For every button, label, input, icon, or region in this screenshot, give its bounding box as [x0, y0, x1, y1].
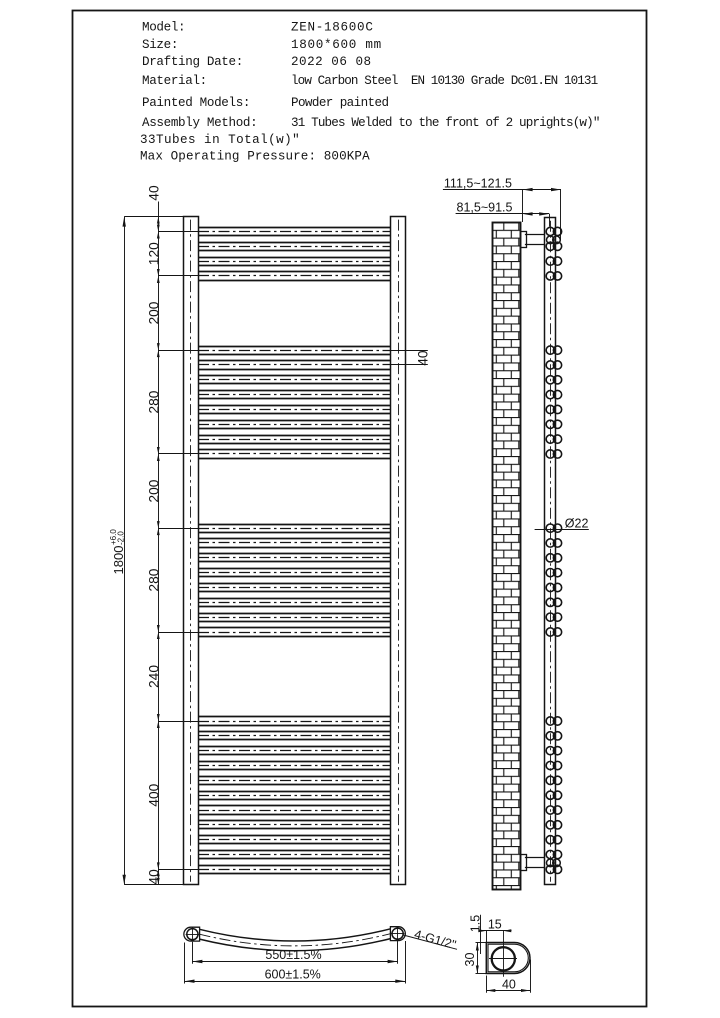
svg-text:400: 400	[147, 783, 162, 806]
svg-text:Size:: Size:	[142, 38, 178, 52]
svg-text:Painted Models:: Painted Models:	[142, 96, 250, 110]
svg-text:33Tubes in Total(w)″: 33Tubes in Total(w)″	[140, 133, 300, 147]
svg-text:Model:: Model:	[142, 21, 185, 35]
svg-text:low Carbon Steel EN 10130 Gra: low Carbon Steel EN 10130 Grade Dc01.EN …	[291, 74, 598, 88]
svg-text:200: 200	[147, 301, 162, 324]
svg-text:Powder painted: Powder painted	[291, 96, 388, 110]
svg-text:1.5: 1.5	[469, 915, 483, 932]
svg-text:280: 280	[147, 568, 162, 591]
svg-text:-2.0: -2.0	[117, 531, 126, 545]
svg-text:Material:: Material:	[142, 74, 207, 88]
svg-text:40: 40	[147, 185, 162, 201]
svg-text:40: 40	[147, 869, 162, 885]
svg-text:31 Tubes Welded to the front o: 31 Tubes Welded to the front of 2 uprigh…	[291, 116, 600, 130]
svg-text:ZEN-18600C: ZEN-18600C	[291, 21, 374, 35]
svg-text:81,5~91.5: 81,5~91.5	[457, 201, 513, 215]
svg-text:1800*600 mm: 1800*600 mm	[291, 38, 382, 52]
svg-text:120: 120	[147, 242, 162, 265]
svg-text:550±1.5%: 550±1.5%	[265, 948, 321, 962]
svg-text:Assembly Method:: Assembly Method:	[142, 116, 257, 130]
svg-text:200: 200	[147, 479, 162, 502]
svg-text:2022 06 08: 2022 06 08	[291, 55, 372, 69]
svg-text:111,5~121.5: 111,5~121.5	[444, 176, 512, 190]
svg-text:40: 40	[502, 977, 516, 991]
svg-text:Ø22: Ø22	[565, 517, 589, 531]
svg-text:240: 240	[147, 665, 162, 688]
svg-text:40: 40	[416, 350, 431, 366]
svg-text:30: 30	[463, 953, 477, 967]
svg-text:Max Operating Pressure: 800KPA: Max Operating Pressure: 800KPA	[140, 150, 370, 164]
svg-text:600±1.5%: 600±1.5%	[265, 967, 321, 981]
svg-text:Drafting Date:: Drafting Date:	[142, 55, 243, 69]
svg-text:15: 15	[488, 918, 502, 932]
svg-text:280: 280	[147, 390, 162, 413]
svg-text:1800: 1800	[111, 546, 126, 575]
